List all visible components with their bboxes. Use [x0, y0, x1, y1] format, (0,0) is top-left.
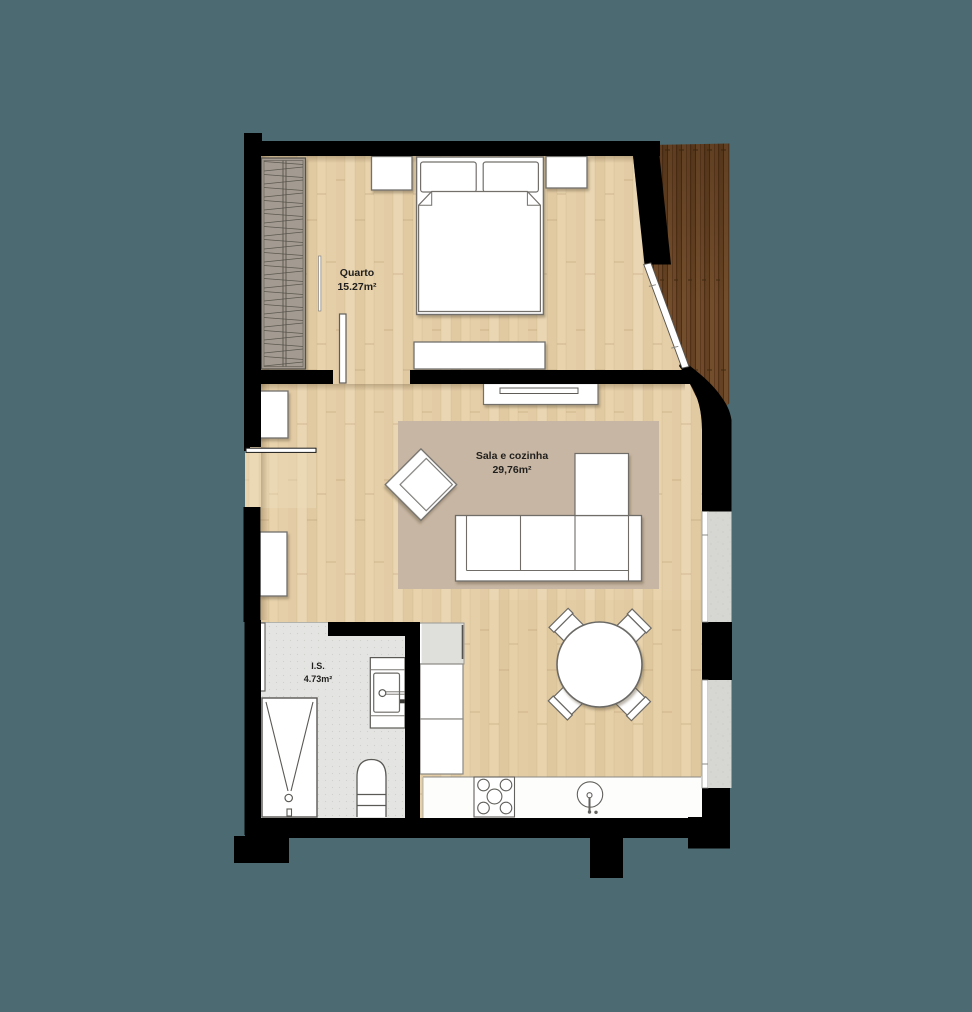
svg-text:Sala e cozinha: Sala e cozinha: [476, 450, 549, 462]
svg-text:15.27m²: 15.27m²: [337, 281, 377, 293]
svg-text:4.73m²: 4.73m²: [304, 674, 333, 684]
svg-text:Quarto: Quarto: [340, 267, 374, 279]
svg-text:29,76m²: 29,76m²: [492, 464, 532, 476]
svg-text:I.S.: I.S.: [311, 661, 325, 671]
